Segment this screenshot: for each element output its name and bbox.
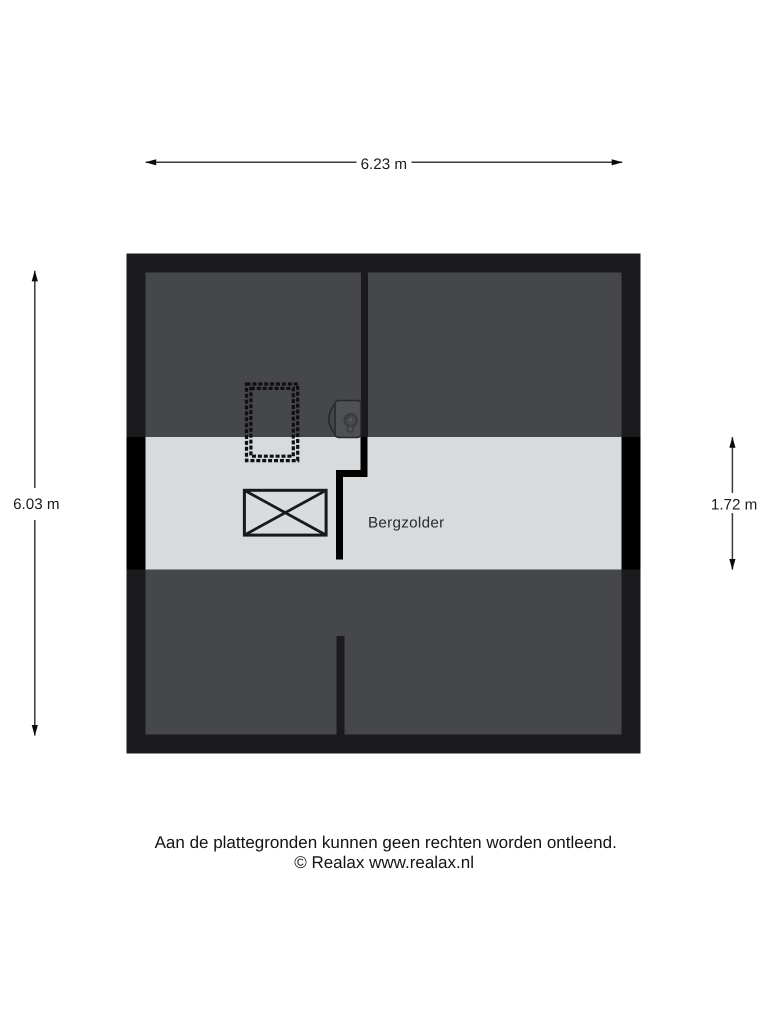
svg-text:Bergzolder: Bergzolder [368,514,444,531]
svg-text:6.03 m: 6.03 m [13,496,59,513]
svg-text:1.72 m: 1.72 m [711,497,757,514]
svg-text:© Realax www.realax.nl: © Realax www.realax.nl [294,853,474,872]
svg-text:6.23 m: 6.23 m [361,156,407,173]
svg-text:Aan de plattegronden kunnen ge: Aan de plattegronden kunnen geen rechten… [155,833,617,852]
